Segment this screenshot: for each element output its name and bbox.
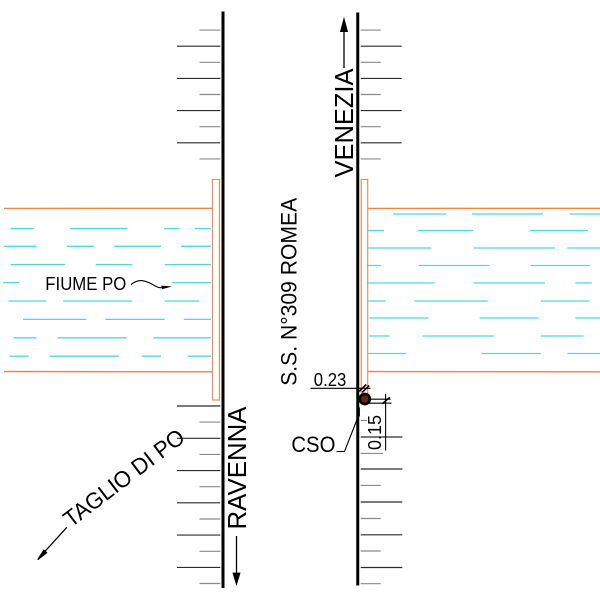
- svg-text:CSO: CSO: [291, 432, 335, 457]
- svg-text:0.15: 0.15: [365, 415, 385, 450]
- svg-text:RAVENNA: RAVENNA: [224, 407, 252, 530]
- svg-text:FIUME PO: FIUME PO: [45, 273, 126, 294]
- svg-text:S.S. N°309 ROMEA: S.S. N°309 ROMEA: [276, 197, 301, 385]
- svg-text:VENEZIA: VENEZIA: [331, 69, 359, 178]
- svg-text:0.23: 0.23: [314, 370, 347, 390]
